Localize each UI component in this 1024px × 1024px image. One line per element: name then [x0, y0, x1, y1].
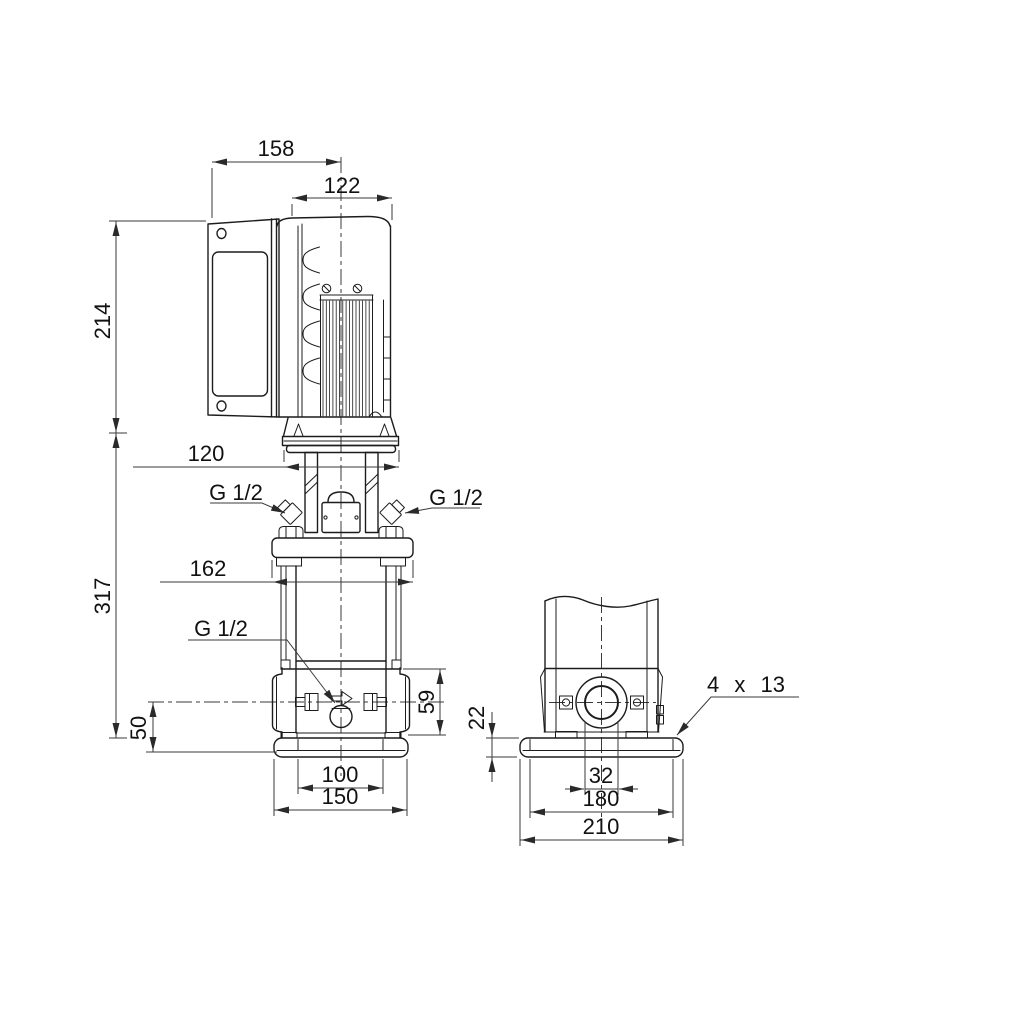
control-box: [208, 219, 279, 417]
dim-158-label: 158: [258, 136, 295, 161]
dim-120-label: 120: [188, 441, 225, 466]
dim-214-label: 214: [90, 303, 115, 340]
dim-150-label: 150: [322, 784, 359, 809]
pump-dimensional-drawing: 158 122 214 317 120 162 50 59 100 150 G …: [0, 0, 1024, 1024]
drain-port-label: G 1/2: [194, 616, 248, 641]
dim-50-label: 50: [126, 716, 151, 740]
dim-122-label: 122: [324, 173, 361, 198]
dimensions-side-view: [109, 162, 480, 816]
port-flange: [273, 660, 298, 738]
motor: [277, 217, 391, 418]
dimensions-end-view: [486, 697, 799, 846]
labels-side-view: 158 122 214 317 120 162 50 59 100 150 G …: [90, 136, 483, 809]
head-flange: [272, 538, 413, 558]
port-label-top-left: G 1/2: [209, 480, 263, 505]
cable-entry-bumps: [303, 247, 320, 384]
dim-180-label: 180: [583, 786, 620, 811]
flow-direction-arrow: [332, 692, 352, 706]
port-label-top-right: G 1/2: [429, 485, 483, 510]
screw-hole-bottom: [217, 401, 226, 411]
dim-317-label: 317: [90, 578, 115, 615]
dim-210-label: 210: [583, 814, 620, 839]
side-view: 158 122 214 317 120 162 50 59 100 150 G …: [90, 136, 483, 816]
dim-22-label: 22: [464, 706, 489, 730]
end-view: 22 32 180 210 4 x 13: [464, 596, 799, 846]
vent-fitting: [275, 498, 303, 538]
dim-59-label: 59: [414, 690, 439, 714]
dim-162-label: 162: [190, 556, 227, 581]
leader-base-holes: [677, 697, 799, 735]
pump-head: [272, 453, 413, 567]
base-holes-label: 4 x 13: [707, 672, 785, 697]
dim-32-label: 32: [589, 763, 613, 788]
cooling-fins: [320, 295, 390, 417]
screw-hole-top: [217, 229, 226, 239]
fan-cover-screws: [322, 284, 362, 293]
